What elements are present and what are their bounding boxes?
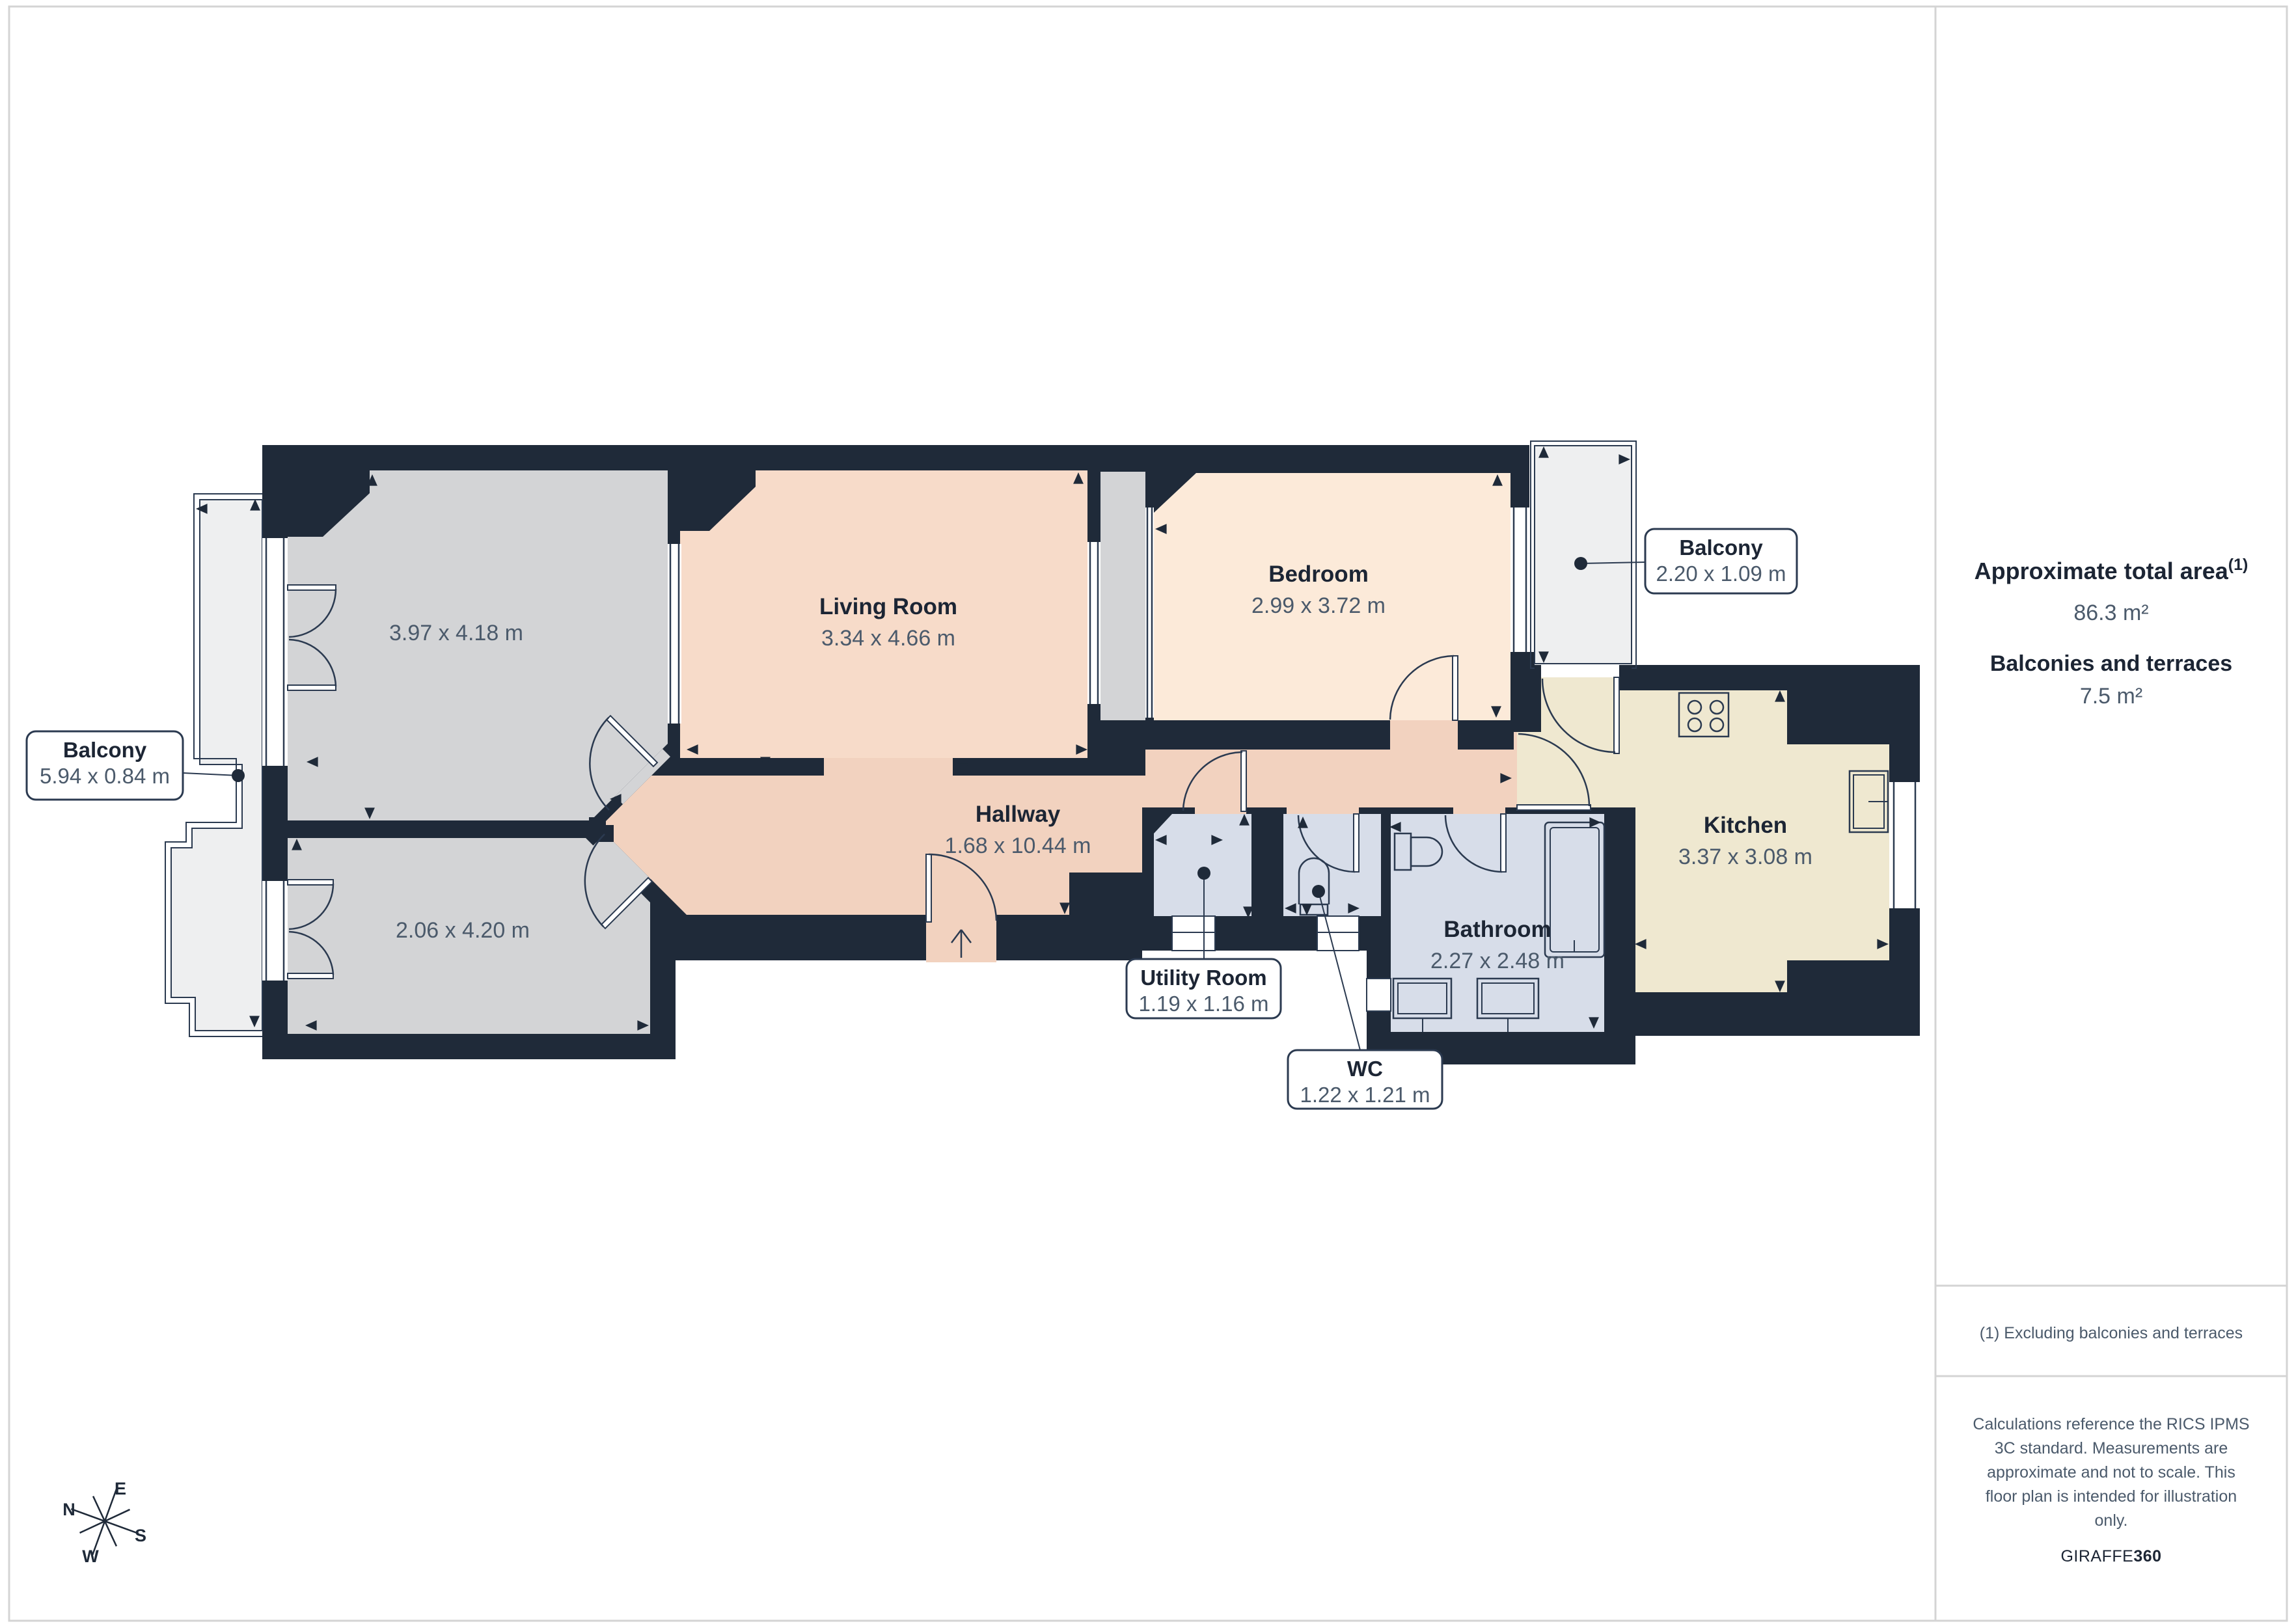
- svg-text:Approximate total area(1): Approximate total area(1): [1975, 556, 2248, 584]
- svg-text:Balcony: Balcony: [63, 738, 147, 762]
- svg-text:Balconies and terraces: Balconies and terraces: [1990, 651, 2232, 676]
- svg-text:Balcony: Balcony: [1679, 535, 1763, 560]
- svg-text:Living Room: Living Room: [819, 594, 957, 619]
- svg-text:3C standard. Measurements are: 3C standard. Measurements are: [1995, 1439, 2228, 1457]
- svg-text:Calculations reference the RIC: Calculations reference the RICS IPMS: [1973, 1415, 2249, 1433]
- svg-text:Utility Room: Utility Room: [1140, 966, 1266, 990]
- svg-text:WC: WC: [1347, 1057, 1383, 1081]
- svg-text:W: W: [82, 1547, 99, 1566]
- svg-text:(1) Excluding balconies and te: (1) Excluding balconies and terraces: [1980, 1324, 2243, 1342]
- svg-text:N: N: [62, 1500, 75, 1519]
- svg-text:3.34 x 4.66 m: 3.34 x 4.66 m: [821, 626, 955, 651]
- svg-text:1.19 x 1.16 m: 1.19 x 1.16 m: [1139, 992, 1269, 1016]
- svg-text:1.22 x 1.21 m: 1.22 x 1.21 m: [1300, 1083, 1430, 1107]
- svg-text:Bedroom: Bedroom: [1268, 562, 1369, 587]
- svg-text:Kitchen: Kitchen: [1704, 813, 1787, 838]
- svg-text:S: S: [135, 1526, 146, 1545]
- svg-text:approximate and not to scale.: approximate and not to scale. This: [1987, 1463, 2235, 1482]
- svg-text:E: E: [115, 1479, 126, 1498]
- svg-text:1.68 x 10.44 m: 1.68 x 10.44 m: [945, 833, 1091, 858]
- svg-text:2.99 x 3.72 m: 2.99 x 3.72 m: [1251, 593, 1386, 618]
- svg-text:3.37 x 3.08 m: 3.37 x 3.08 m: [1678, 845, 1812, 869]
- svg-text:GIRAFFE360: GIRAFFE360: [2060, 1547, 2161, 1565]
- svg-text:86.3 m²: 86.3 m²: [2073, 601, 2148, 625]
- svg-text:Hallway: Hallway: [976, 802, 1061, 827]
- svg-text:floor plan is intended for ill: floor plan is intended for illustration: [1986, 1487, 2237, 1506]
- svg-text:Bathroom: Bathroom: [1443, 917, 1551, 942]
- svg-text:3.97 x 4.18 m: 3.97 x 4.18 m: [389, 621, 523, 645]
- svg-text:2.27 x 2.48 m: 2.27 x 2.48 m: [1430, 949, 1565, 973]
- svg-text:2.06 x 4.20 m: 2.06 x 4.20 m: [396, 918, 530, 943]
- svg-text:only.: only.: [2095, 1511, 2128, 1530]
- svg-text:2.20 x 1.09 m: 2.20 x 1.09 m: [1656, 562, 1786, 586]
- svg-text:5.94 x 0.84 m: 5.94 x 0.84 m: [40, 764, 170, 788]
- svg-text:7.5 m²: 7.5 m²: [2080, 684, 2142, 709]
